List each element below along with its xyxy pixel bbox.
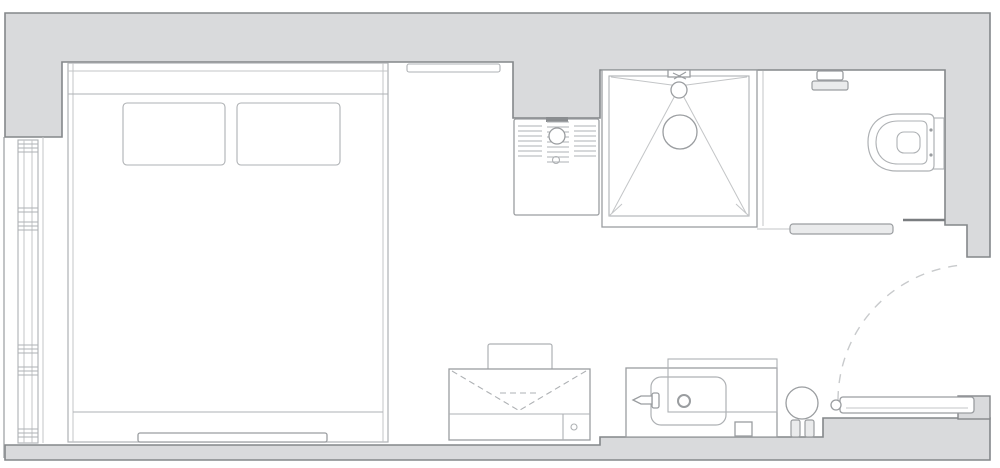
bed-runner-bench xyxy=(138,433,327,442)
wall-accessory xyxy=(812,71,848,90)
roll-holder-base xyxy=(812,81,848,90)
shower-head xyxy=(663,115,697,149)
wall-shelf xyxy=(407,64,500,72)
door-swing-arc xyxy=(838,265,963,400)
stool-seat xyxy=(786,387,818,419)
door-leaf xyxy=(840,397,974,413)
walk-in-shower xyxy=(602,70,763,227)
glass-screen xyxy=(757,224,893,234)
toilet-bolt xyxy=(929,153,932,156)
double-bed xyxy=(68,63,388,442)
stool-leg xyxy=(791,420,800,437)
toilet-bolt xyxy=(929,128,932,131)
stool xyxy=(786,387,818,437)
screen-panel xyxy=(790,224,893,234)
window-mullions xyxy=(18,144,38,437)
entry-door xyxy=(831,265,974,413)
desk-area xyxy=(449,344,590,440)
toilet-bowl-outer xyxy=(868,114,934,171)
heater-vent-cap xyxy=(546,117,568,122)
heater-unit xyxy=(514,117,599,215)
floor-plan-canvas xyxy=(0,0,1000,468)
floor-plan-drawing xyxy=(0,0,1000,468)
window-wall xyxy=(4,137,43,458)
drain xyxy=(678,395,690,407)
toilet xyxy=(868,114,944,171)
heater-dial xyxy=(549,128,565,144)
shower-mixer xyxy=(671,82,687,98)
roll-holder-top xyxy=(817,71,843,80)
desk xyxy=(449,369,590,440)
door-handle xyxy=(831,400,841,410)
stool-leg xyxy=(805,420,814,437)
window-frame xyxy=(18,140,38,443)
sink-unit xyxy=(626,359,777,437)
waste-bin xyxy=(735,422,752,436)
